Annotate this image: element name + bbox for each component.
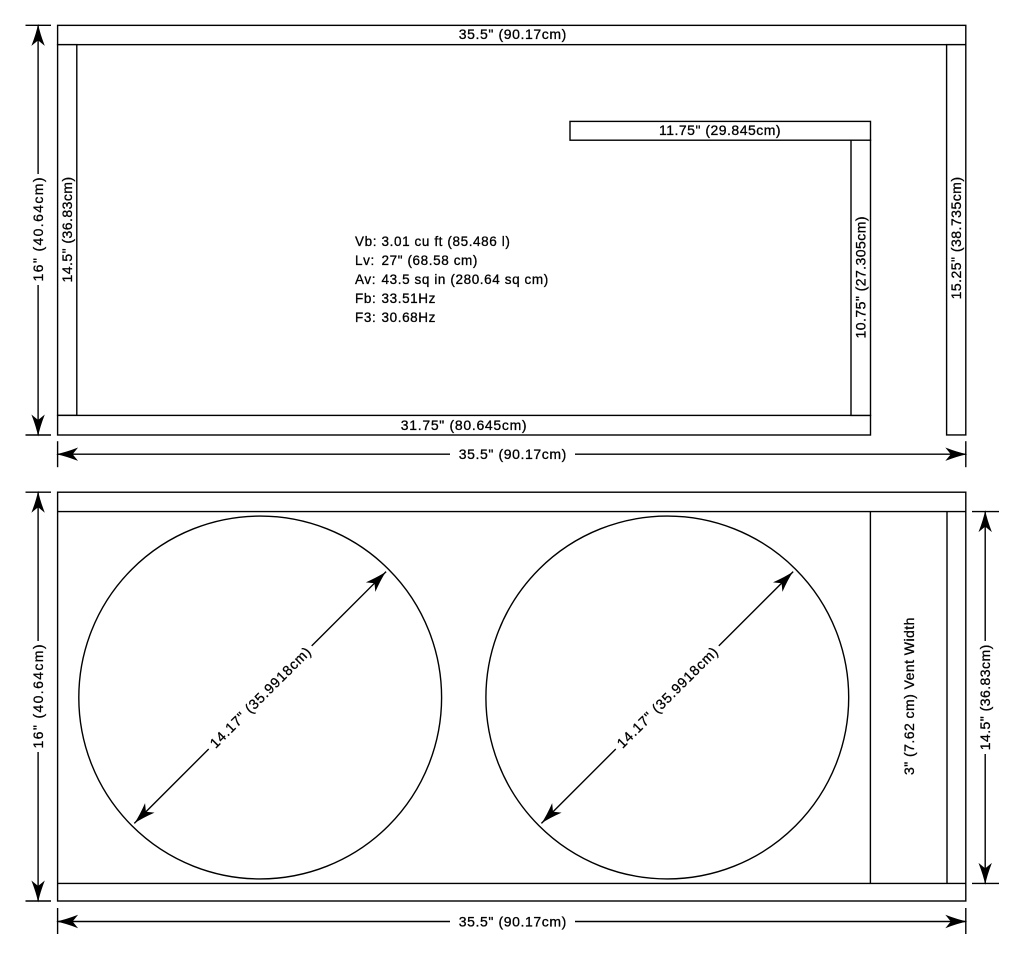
svg-text:11.75" (29.845cm): 11.75" (29.845cm)	[659, 122, 781, 138]
svg-text:3" (7.62 cm) Vent Width: 3" (7.62 cm) Vent Width	[901, 618, 917, 776]
svg-text:Fb:33.51Hz: Fb:33.51Hz	[355, 291, 436, 306]
svg-text:16" (40.64cm): 16" (40.64cm)	[30, 178, 46, 282]
svg-text:Av:43.5 sq in (280.64 sq cm): Av:43.5 sq in (280.64 sq cm)	[355, 272, 549, 287]
svg-text:35.5" (90.17cm): 35.5" (90.17cm)	[459, 913, 567, 929]
svg-text:15.25" (38.735cm): 15.25" (38.735cm)	[948, 177, 964, 299]
svg-text:Lv:27" (68.58 cm): Lv:27" (68.58 cm)	[355, 253, 478, 268]
svg-text:10.75" (27.305cm): 10.75" (27.305cm)	[852, 217, 868, 339]
svg-text:14.5" (36.83cm): 14.5" (36.83cm)	[59, 177, 75, 283]
svg-text:16" (40.64cm): 16" (40.64cm)	[30, 645, 46, 749]
svg-text:14.5" (36.83cm): 14.5" (36.83cm)	[977, 645, 993, 751]
svg-text:F3:30.68Hz: F3:30.68Hz	[355, 310, 436, 325]
svg-text:35.5" (90.17cm): 35.5" (90.17cm)	[459, 446, 567, 462]
svg-text:31.75" (80.645cm): 31.75" (80.645cm)	[401, 417, 527, 433]
svg-text:35.5" (90.17cm): 35.5" (90.17cm)	[459, 26, 567, 42]
